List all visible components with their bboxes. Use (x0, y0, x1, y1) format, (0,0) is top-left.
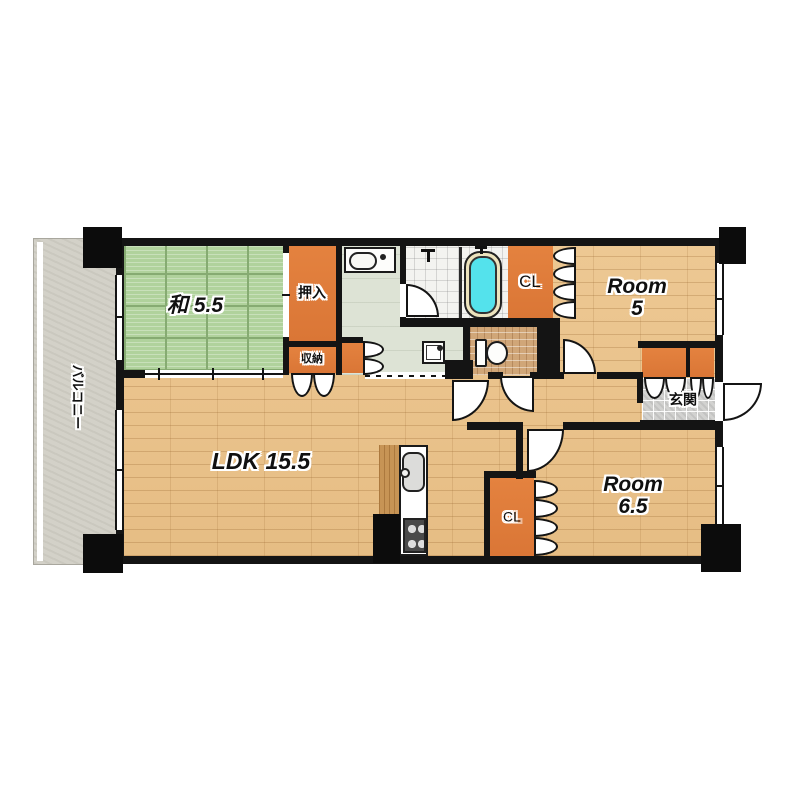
label-room65-line2: 6.5 (618, 495, 647, 518)
pillar-kitchen (373, 514, 400, 563)
label-genkan: 玄関 (669, 393, 697, 408)
bathroom-partition (459, 247, 462, 323)
label-balcony: バルコニー (70, 365, 84, 430)
label-cl-room5: CL (519, 273, 541, 291)
floor-plan: 和 5.5 LDK 15.5 Room 5 Room 6.5 押入 収納 CL … (0, 0, 800, 800)
wall-hall-b (530, 372, 564, 379)
wall-bath-south (400, 318, 560, 327)
cl-room65-doors (534, 480, 558, 556)
wall-room65-north (563, 422, 716, 430)
pillar-top-right (719, 227, 746, 264)
kitchen-stove (403, 518, 426, 553)
label-room65-line1: Room (603, 473, 663, 496)
linen-closet (341, 343, 363, 373)
wall-oshiire-right (336, 245, 342, 375)
wall-cl65-top (484, 471, 536, 478)
toilet-bowl (486, 341, 508, 365)
label-cl-room65: CL (503, 510, 521, 525)
pillar-bottom-left (83, 534, 123, 573)
wall-linen-top (341, 337, 363, 343)
label-shuno: 収納 (301, 354, 323, 366)
wall-cl65-left (484, 478, 490, 556)
bathtub (464, 251, 502, 319)
genkan-closet-left (642, 348, 686, 377)
window-ldk-mullion (115, 469, 124, 471)
shuno-doors (291, 373, 335, 397)
cl-room5-doors (553, 247, 576, 319)
wall-room5-south-east (638, 341, 716, 348)
wall-genkan-closet-div (686, 348, 690, 377)
wall-genkan-west (637, 377, 643, 403)
bathroom-sink (344, 247, 396, 273)
label-room5-line1: Room (607, 275, 667, 298)
window-room65-mullion (715, 485, 724, 487)
wall-bottom (115, 556, 723, 564)
window-room5-mullion (715, 298, 724, 300)
wall-oshiire-shuno (289, 341, 336, 347)
sliding-tick-2 (212, 368, 214, 380)
linen-closet-doors (363, 341, 384, 375)
pillar-bottom-right (701, 524, 741, 572)
washer-pan (422, 341, 445, 364)
label-room5: Room 5 (607, 276, 667, 320)
bathtub-water (469, 256, 497, 314)
window-tatami-mullion (115, 316, 124, 318)
wall-washroom-se (445, 360, 473, 379)
balcony-railing (37, 242, 43, 561)
sliding-tick-1 (158, 368, 160, 380)
washer-drain (437, 345, 443, 351)
kitchen-side-panel (379, 445, 399, 515)
label-room5-line2: 5 (631, 297, 643, 320)
sliding-tick-3 (262, 368, 264, 380)
wall-top (115, 238, 723, 246)
fusuma-tick (282, 294, 290, 296)
label-oshiire: 押入 (298, 286, 326, 301)
tub-faucet-stem (480, 246, 483, 254)
wall-toilet-right (537, 325, 560, 378)
pillar-top-left (83, 227, 122, 268)
sink-bowl (349, 252, 377, 270)
wall-hall-lower (467, 422, 523, 430)
shower-faucet-stem (427, 249, 430, 262)
entry-door (723, 383, 762, 421)
label-tatami: 和 5.5 (167, 295, 223, 317)
sink-faucet-dot (380, 254, 386, 260)
kitchen-faucet (400, 468, 410, 478)
label-room65: Room 6.5 (603, 474, 663, 518)
wall-tatami-south-left (123, 370, 145, 378)
genkan-closet-right (690, 348, 714, 377)
label-ldk: LDK 15.5 (212, 449, 310, 473)
